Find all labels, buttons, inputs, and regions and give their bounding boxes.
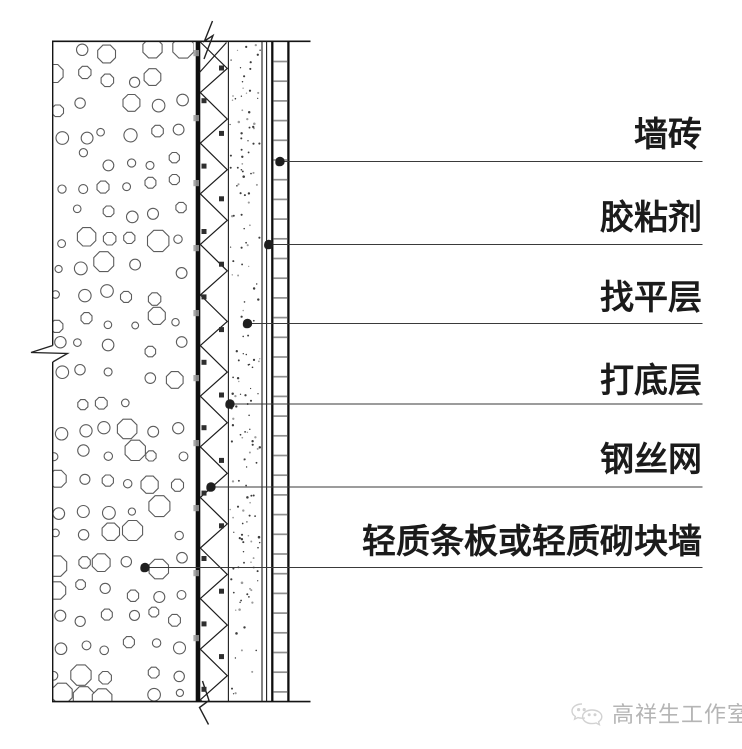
studio-logo-icon [570, 701, 606, 731]
leader-leveling-layer [243, 319, 703, 328]
label-leveling-layer: 找平层 [600, 279, 702, 317]
label-base-coat: 打底层 [600, 362, 702, 400]
wire-mesh-layer [193, 41, 227, 749]
leader-steel-wire-mesh [206, 482, 702, 491]
wall-section-detail-diagram: 墙砖 胶粘剂 找平层 打底层 钢丝网 轻质条板或轻质砌块墙 高祥生工作室 [0, 0, 742, 749]
wall-tile-layer [272, 41, 288, 701]
leader-wall-tile [275, 157, 702, 166]
plaster-layers [228, 41, 266, 701]
aggregate-wall-layer [45, 37, 194, 708]
label-wall-tile: 墙砖 [634, 116, 702, 154]
label-lightweight-wall: 轻质条板或轻质砌块墙 [362, 523, 702, 561]
studio-name: 高祥生工作室 [612, 701, 742, 731]
label-adhesive: 胶粘剂 [600, 199, 702, 237]
leader-lightweight-wall [140, 563, 702, 572]
leader-adhesive [264, 240, 702, 249]
label-steel-wire-mesh: 钢丝网 [600, 441, 702, 479]
studio-watermark: 高祥生工作室 [570, 701, 742, 731]
